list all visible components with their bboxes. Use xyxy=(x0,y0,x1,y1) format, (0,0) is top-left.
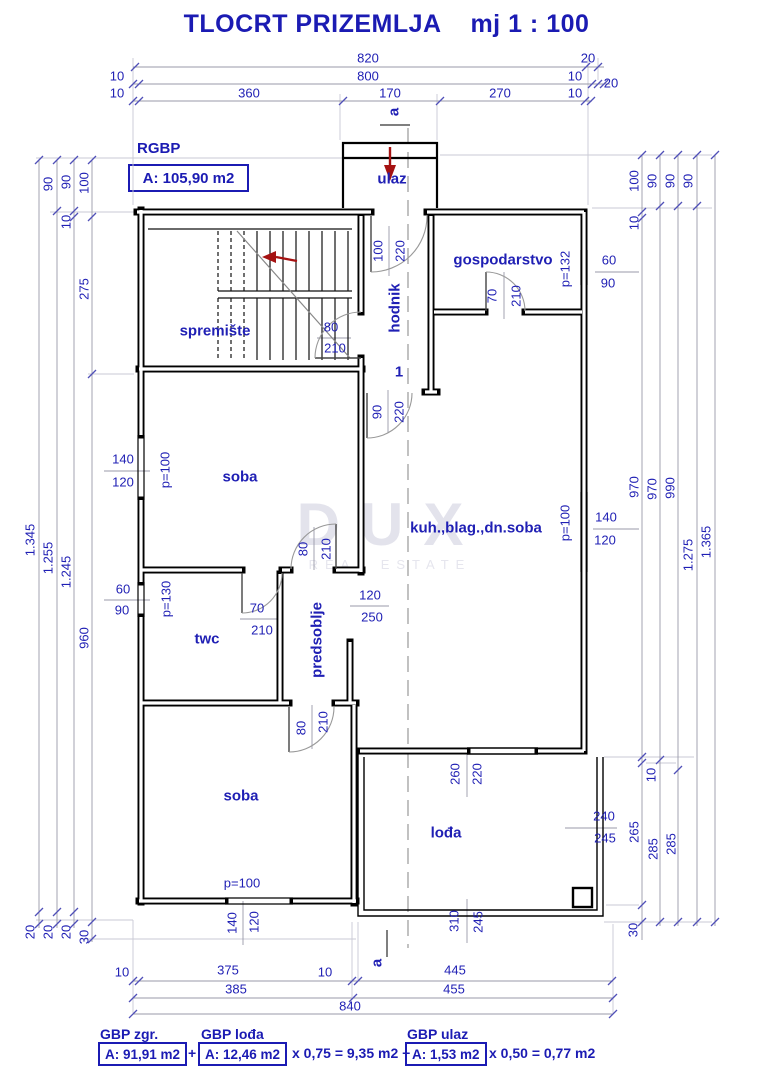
dim-label: 210 xyxy=(510,285,523,307)
dim-label: 10 xyxy=(645,768,658,782)
dim-label: 220 xyxy=(471,763,484,785)
dim-label: 140 xyxy=(112,453,134,466)
dim-label: p=100 xyxy=(224,877,261,890)
stair-number-label: 1 xyxy=(395,365,403,380)
dim-label: 10 xyxy=(110,87,124,100)
floorplan-drawing xyxy=(0,0,773,1080)
dim-label: 100 xyxy=(78,172,91,194)
dim-label: 140 xyxy=(595,511,617,524)
loggia-pillar xyxy=(573,888,592,907)
dim-label: p=132 xyxy=(559,251,572,288)
dim-label: 1.275 xyxy=(682,539,695,572)
dim-label: 960 xyxy=(78,627,91,649)
section-marker-a-top: a xyxy=(387,108,402,116)
stairs-direction-arrow-stem xyxy=(276,257,297,261)
dim-label: 90 xyxy=(60,175,73,189)
floorplan-page: TLOCRT PRIZEMLJA mj 1 : 100 RGBP A: 105,… xyxy=(0,0,773,1080)
dim-label: 90 xyxy=(115,604,129,617)
dim-label: 90 xyxy=(682,174,695,188)
dim-label: 210 xyxy=(324,342,346,355)
dim-label: 210 xyxy=(320,538,333,560)
dim-label: 385 xyxy=(225,983,247,996)
legend-area-gbp-zgr: A: 91,91 m2 xyxy=(98,1042,187,1066)
window-glazing-lines xyxy=(138,250,587,904)
dim-label: 840 xyxy=(339,1000,361,1013)
section-marker-a-bottom: a xyxy=(370,959,385,967)
room-label-predsoblje: predsoblje xyxy=(310,602,325,678)
room-label-loda: lođa xyxy=(431,826,462,841)
dim-label: 360 xyxy=(238,87,260,100)
dim-label: 445 xyxy=(444,964,466,977)
dim-label: 100 xyxy=(628,170,641,192)
dim-label: 245 xyxy=(594,832,616,845)
dim-label: 1.255 xyxy=(42,542,55,575)
dim-label: 220 xyxy=(393,401,406,423)
stairs-treads-dashed xyxy=(218,231,244,360)
dim-label: 90 xyxy=(646,174,659,188)
dim-label: 120 xyxy=(359,589,381,602)
dim-label: 20 xyxy=(581,52,595,65)
room-label-ulaz: ulaz xyxy=(377,172,406,187)
dim-label: 20 xyxy=(60,925,73,939)
dim-label: 20 xyxy=(604,77,618,90)
dim-label: 20 xyxy=(24,925,37,939)
dim-label: 90 xyxy=(601,277,615,290)
dim-label: 20 xyxy=(42,925,55,939)
dim-label: 1.345 xyxy=(24,524,37,557)
dim-label: 220 xyxy=(394,240,407,262)
legend-formula-loda: x 0,75 = 9,35 m2 + xyxy=(292,1045,410,1061)
legend-area-gbp-ulaz: A: 1,53 m2 xyxy=(405,1042,487,1066)
dim-label: 10 xyxy=(60,215,73,229)
dim-label: 265 xyxy=(628,821,641,843)
dim-label: 140 xyxy=(226,912,239,934)
room-label-twc: twc xyxy=(194,632,219,647)
dim-label: 90 xyxy=(42,177,55,191)
dim-label: 10 xyxy=(110,70,124,83)
dim-label: 70 xyxy=(486,289,499,303)
dim-label: 60 xyxy=(116,583,130,596)
dim-label: 30 xyxy=(627,923,640,937)
dim-label: 80 xyxy=(297,542,310,556)
dim-label: 10 xyxy=(115,966,129,979)
dim-label: 455 xyxy=(443,983,465,996)
room-label-gospodarstvo: gospodarstvo xyxy=(453,253,552,268)
dim-label: 10 xyxy=(318,966,332,979)
dim-label: 970 xyxy=(646,478,659,500)
room-label-soba-1: soba xyxy=(222,470,257,485)
door-swing-arcs xyxy=(242,216,525,752)
dim-label: 100 xyxy=(372,240,385,262)
dim-label: 240 xyxy=(593,810,615,823)
dim-label: 270 xyxy=(489,87,511,100)
dim-label: p=100 xyxy=(159,452,172,489)
dim-label: 990 xyxy=(664,477,677,499)
dim-label: 10 xyxy=(568,70,582,83)
dim-label: 1.245 xyxy=(60,556,73,589)
dim-label: 310 xyxy=(448,910,461,932)
stairs-walk-line xyxy=(237,231,350,358)
dim-label: 10 xyxy=(568,87,582,100)
dim-label: 375 xyxy=(217,964,239,977)
dim-label: 800 xyxy=(357,70,379,83)
dim-label: 260 xyxy=(449,763,462,785)
legend-title-gbp-ulaz: GBP ulaz xyxy=(407,1026,468,1042)
legend-title-gbp-zgr: GBP zgr. xyxy=(100,1026,158,1042)
dim-label: 820 xyxy=(357,52,379,65)
room-label-spremiste: spremište xyxy=(180,324,251,339)
dim-label: 80 xyxy=(324,321,338,334)
room-label-soba-2: soba xyxy=(223,789,258,804)
dim-label: 120 xyxy=(594,534,616,547)
room-label-hodnik: hodnik xyxy=(388,283,403,332)
dim-label: 970 xyxy=(628,476,641,498)
room-label-kuhinja: kuh.,blag.,dn.soba xyxy=(410,521,542,536)
dim-label: 210 xyxy=(251,624,273,637)
dim-label: 245 xyxy=(472,911,485,933)
dim-label: 70 xyxy=(250,602,264,615)
dim-label: p=100 xyxy=(559,505,572,542)
stairs-treads xyxy=(148,229,352,360)
dim-label: 90 xyxy=(371,405,384,419)
dim-label: 285 xyxy=(647,838,660,860)
dim-label: 60 xyxy=(602,254,616,267)
dim-label: 275 xyxy=(78,278,91,300)
dim-label: 285 xyxy=(665,833,678,855)
dim-label: 210 xyxy=(317,711,330,733)
dim-label: 10 xyxy=(628,216,641,230)
dim-label: 170 xyxy=(379,87,401,100)
dim-label: 120 xyxy=(248,911,261,933)
dim-label: 250 xyxy=(361,611,383,624)
legend-plus-1: + xyxy=(188,1045,196,1061)
dim-label: 30 xyxy=(78,930,91,944)
legend-formula-ulaz: x 0,50 = 0,77 m2 xyxy=(489,1045,595,1061)
dim-label: 1.365 xyxy=(700,526,713,559)
dim-label: 120 xyxy=(112,476,134,489)
legend-area-gbp-loda: A: 12,46 m2 xyxy=(198,1042,287,1066)
dim-label: 90 xyxy=(664,174,677,188)
legend-title-gbp-loda: GBP lođa xyxy=(201,1026,264,1042)
dim-label: 80 xyxy=(295,721,308,735)
dim-label: p=130 xyxy=(160,581,173,618)
